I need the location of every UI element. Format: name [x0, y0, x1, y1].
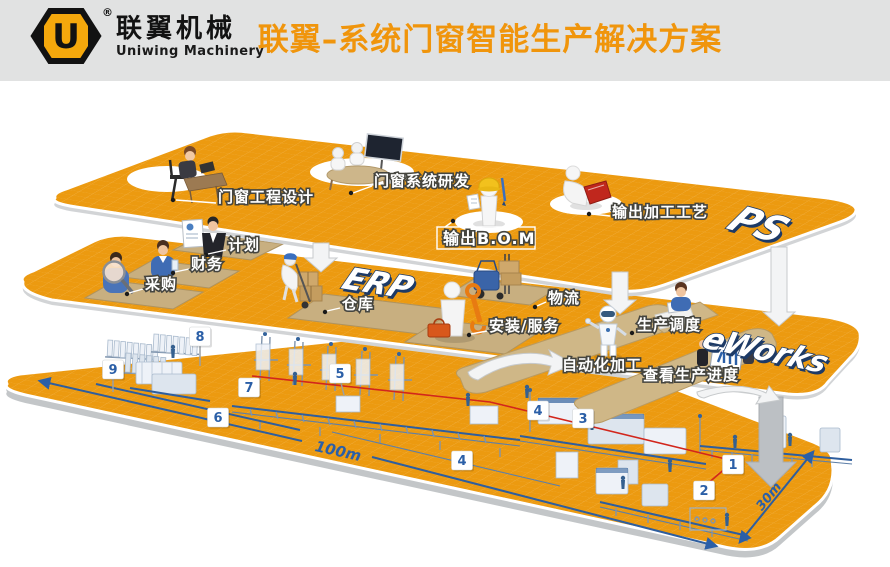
header-bar: U ® 联翼机械 Uniwing Machinery 联翼–系统门窗智能生产解决…: [0, 0, 890, 81]
svg-text:5: 5: [335, 367, 344, 382]
svg-text:8: 8: [195, 330, 204, 345]
logo-letter: U: [52, 17, 80, 57]
badge-4b: 4: [452, 451, 475, 472]
svg-text:财务: 财务: [191, 255, 223, 273]
svg-text:生产调度: 生产调度: [637, 316, 701, 334]
registered-mark: ®: [102, 6, 113, 19]
toolbox-icon: [428, 324, 450, 337]
svg-text:仓库: 仓库: [341, 295, 374, 313]
svg-text:4: 4: [533, 404, 542, 419]
magnifier-icon: [104, 262, 125, 283]
svg-text:6: 6: [213, 411, 222, 426]
svg-text:2: 2: [699, 484, 708, 499]
svg-text:9: 9: [108, 363, 117, 378]
badge-3: 3: [573, 409, 596, 430]
svg-text:门窗系统研发: 门窗系统研发: [374, 172, 470, 190]
svg-text:采购: 采购: [144, 275, 177, 293]
brand-logo: U ® 联翼机械 Uniwing Machinery: [30, 6, 264, 66]
svg-text:安装/服务: 安装/服务: [489, 317, 559, 335]
svg-text:物流: 物流: [548, 289, 580, 307]
svg-text:7: 7: [244, 381, 253, 396]
badge-1: 1: [723, 455, 746, 476]
brand-name-cn: 联翼机械: [116, 14, 264, 44]
svg-text:输出加工工艺: 输出加工工艺: [612, 203, 708, 221]
label-auto: 自动化加工: [562, 356, 642, 374]
svg-text:输出B.O.M: 输出B.O.M: [443, 229, 536, 248]
arrow-down-3: [763, 247, 795, 326]
svg-text:门窗工程设计: 门窗工程设计: [218, 188, 314, 206]
page-title: 联翼–系统门窗智能生产解决方案: [250, 14, 730, 59]
uniwing-logo-icon: U: [30, 6, 108, 66]
svg-text:3: 3: [578, 412, 587, 427]
label-schedule: 生产调度: [630, 316, 701, 335]
brand-name-en: Uniwing Machinery: [116, 44, 264, 59]
badge-4a: 4: [528, 401, 551, 422]
badge-6: 6: [208, 408, 231, 429]
badge-7: 7: [239, 378, 262, 399]
solution-diagram: 100m 30m: [0, 0, 890, 567]
badge-2: 2: [694, 481, 717, 502]
svg-text:4: 4: [457, 454, 466, 469]
label-progress: 查看生产进度: [643, 366, 739, 384]
svg-text:1: 1: [728, 458, 737, 473]
svg-text:计划: 计划: [228, 236, 260, 254]
